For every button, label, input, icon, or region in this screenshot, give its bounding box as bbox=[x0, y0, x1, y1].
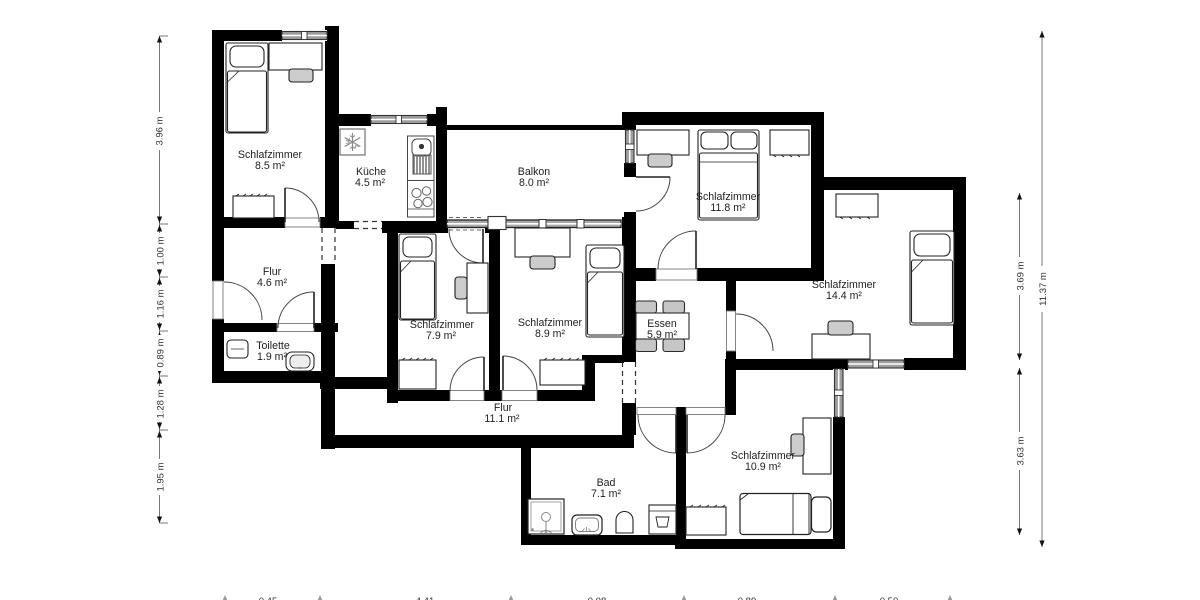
svg-text:7.1 m²: 7.1 m² bbox=[591, 488, 621, 500]
svg-text:0.50: 0.50 bbox=[880, 596, 899, 600]
svg-text:8.0 m²: 8.0 m² bbox=[519, 177, 549, 189]
svg-text:10.9 m²: 10.9 m² bbox=[745, 461, 781, 473]
svg-text:14.4 m²: 14.4 m² bbox=[826, 290, 862, 302]
svg-text:0.45: 0.45 bbox=[259, 596, 278, 600]
svg-text:4.41: 4.41 bbox=[416, 596, 435, 600]
svg-text:0.89: 0.89 bbox=[738, 596, 757, 600]
svg-text:0.89 m: 0.89 m bbox=[156, 338, 167, 367]
svg-text:5.9 m²: 5.9 m² bbox=[647, 329, 677, 341]
svg-text:4.5 m²: 4.5 m² bbox=[355, 177, 385, 189]
svg-text:1.95 m: 1.95 m bbox=[156, 462, 167, 491]
svg-text:7.9 m²: 7.9 m² bbox=[426, 330, 456, 342]
svg-text:1.16 m: 1.16 m bbox=[156, 289, 167, 318]
svg-text:0.08: 0.08 bbox=[588, 596, 607, 600]
svg-text:1.28 m: 1.28 m bbox=[156, 389, 167, 418]
svg-text:11.37 m: 11.37 m bbox=[1038, 272, 1049, 306]
svg-text:8.9 m²: 8.9 m² bbox=[535, 328, 565, 340]
svg-text:1.00 m: 1.00 m bbox=[156, 236, 167, 265]
svg-text:4.6 m²: 4.6 m² bbox=[257, 277, 287, 289]
svg-text:8.5 m²: 8.5 m² bbox=[255, 160, 285, 172]
svg-text:3.63 m: 3.63 m bbox=[1016, 436, 1027, 465]
svg-text:11.8 m²: 11.8 m² bbox=[710, 202, 746, 214]
svg-text:11.1 m²: 11.1 m² bbox=[484, 413, 520, 425]
svg-text:1.9 m²: 1.9 m² bbox=[257, 351, 287, 363]
svg-text:3.69 m: 3.69 m bbox=[1016, 261, 1027, 290]
svg-text:3.96 m: 3.96 m bbox=[155, 116, 166, 145]
